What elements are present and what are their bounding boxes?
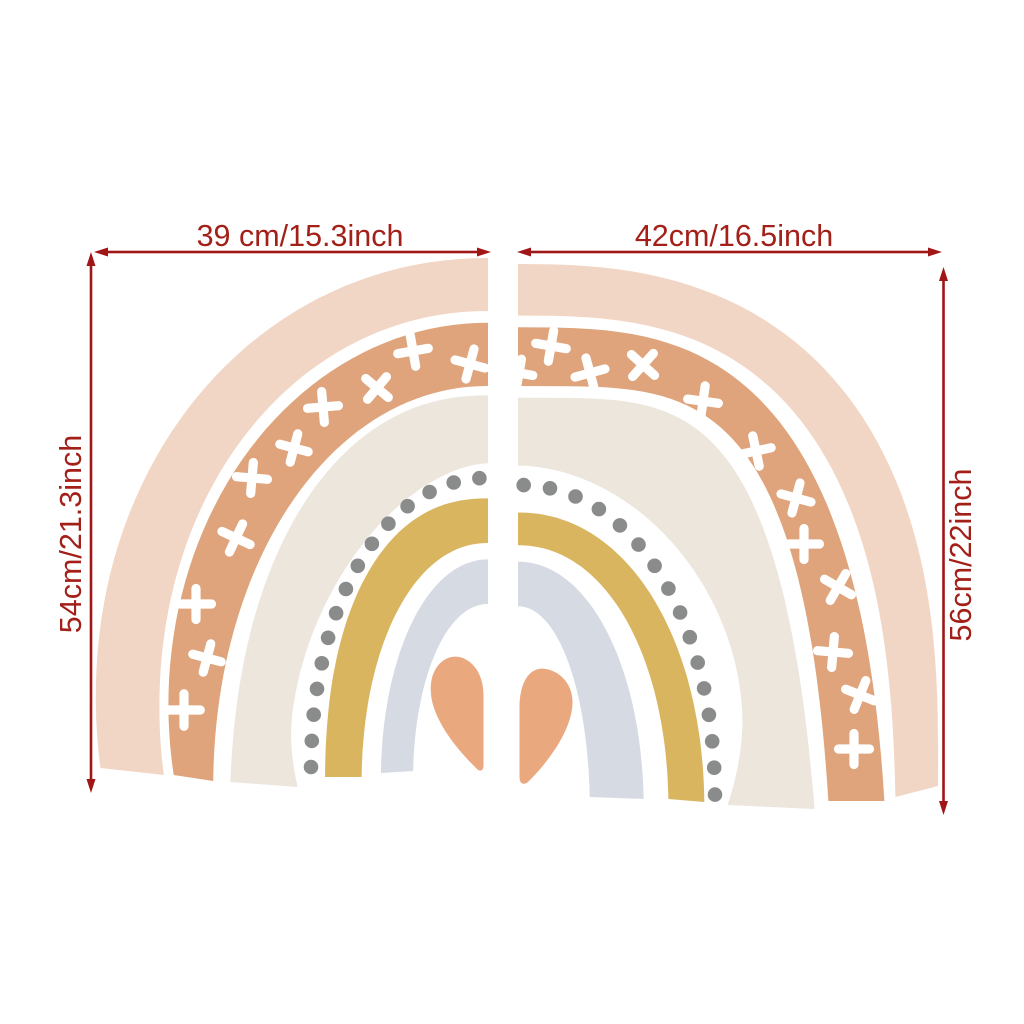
svg-text:42cm/16.5inch: 42cm/16.5inch	[635, 219, 833, 253]
svg-text:56cm/22inch: 56cm/22inch	[944, 469, 978, 642]
svg-text:54cm/21.3inch: 54cm/21.3inch	[54, 435, 88, 633]
svg-text:39 cm/15.3inch: 39 cm/15.3inch	[197, 219, 404, 253]
